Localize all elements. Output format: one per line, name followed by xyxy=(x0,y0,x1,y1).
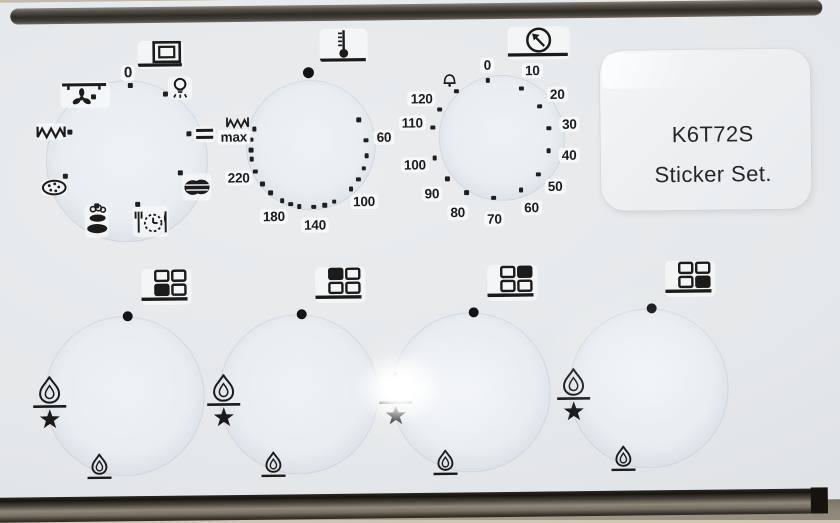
dial-label: 110 xyxy=(399,116,426,131)
dial-tick xyxy=(356,177,361,182)
oven-lamp-icon xyxy=(168,77,192,100)
casserole-icon xyxy=(84,204,108,237)
dial-label: 40 xyxy=(559,147,580,162)
large-flame-icon xyxy=(31,376,68,430)
dial-label: 180 xyxy=(260,209,288,224)
sheen-highlight xyxy=(500,254,772,467)
timer-scale: 0102030405060708090100110120 xyxy=(379,28,601,250)
auto-cook-timer-icon xyxy=(132,206,168,237)
small-flame-icon xyxy=(260,451,286,481)
dial-label: 140 xyxy=(301,217,329,232)
dial-tick xyxy=(546,126,551,131)
dial-tick xyxy=(538,104,543,109)
dial-tick xyxy=(433,156,438,161)
ignition-star-icon xyxy=(40,409,60,428)
dial-label: 70 xyxy=(484,211,505,226)
dial-label: 120 xyxy=(408,91,436,106)
dial-tick xyxy=(311,205,316,210)
product-code: K6T72S xyxy=(623,121,803,149)
panel-content: 0 xyxy=(0,0,840,505)
dial-tick xyxy=(536,172,541,177)
dial-label: 50 xyxy=(545,179,566,194)
dial-tick xyxy=(438,107,443,112)
oven-box-icon xyxy=(138,41,184,70)
burner-position-icon xyxy=(141,269,191,306)
dial-tick xyxy=(67,130,72,135)
pizza-icon xyxy=(41,179,67,196)
dial-tick xyxy=(63,174,68,179)
dial-label: 30 xyxy=(559,117,580,132)
photo: 0 xyxy=(0,0,840,520)
dial-tick xyxy=(431,125,436,130)
dial-tick xyxy=(186,131,191,136)
dial-label: max xyxy=(218,129,251,144)
dial-tick xyxy=(332,199,337,204)
dial-tick xyxy=(135,202,140,207)
dial-tick xyxy=(349,187,354,192)
dial-label: 60 xyxy=(521,200,542,215)
grill-element-icon xyxy=(36,123,67,140)
dial-label: 20 xyxy=(547,87,568,102)
dial-label: 10 xyxy=(522,63,543,78)
dial-tick xyxy=(288,202,293,207)
dial-tick xyxy=(491,196,496,201)
dial-tick xyxy=(268,190,273,195)
dial-tick xyxy=(91,94,96,99)
dial-label: 100 xyxy=(401,157,429,172)
dial-tick xyxy=(249,148,254,153)
dial-tick xyxy=(252,127,257,132)
dial-tick xyxy=(163,92,168,97)
dial-tick xyxy=(128,83,133,88)
dial-tick xyxy=(249,137,254,142)
dial-tick xyxy=(519,188,524,193)
small-flame-icon xyxy=(86,453,112,483)
fan-upper-heat-icon xyxy=(60,81,110,108)
dial-tick xyxy=(364,153,369,158)
dial-label: 90 xyxy=(421,186,442,201)
dial-tick xyxy=(361,166,366,171)
knob-sticker-circle xyxy=(44,315,206,477)
dial-tick xyxy=(546,148,551,153)
product-label-text: K6T72S Sticker Set. xyxy=(623,121,804,189)
dial-tick xyxy=(364,138,369,143)
large-flame-icon xyxy=(205,374,242,428)
dial-tick xyxy=(445,177,450,182)
sticker-sheet: 0 xyxy=(0,0,840,509)
dial-tick xyxy=(322,203,327,208)
burner-off-dot xyxy=(123,311,133,321)
dial-tick xyxy=(94,203,99,208)
product-label-sticker: K6T72S Sticker Set. xyxy=(600,49,812,211)
dial-tick xyxy=(178,170,183,175)
dial-tick xyxy=(260,182,265,187)
dial-tick xyxy=(486,78,491,83)
flash-glare xyxy=(339,338,460,439)
dial-label: 0 xyxy=(481,58,494,73)
dial-tick xyxy=(464,191,469,196)
panel-bottom-trim-cap xyxy=(811,487,828,513)
dial-tick xyxy=(356,117,361,122)
roast-icon xyxy=(182,173,211,200)
dial-tick xyxy=(280,198,285,203)
dial-tick xyxy=(253,169,258,174)
ignition-star-icon xyxy=(214,407,234,426)
dial-tick xyxy=(297,204,302,209)
dial-label: 80 xyxy=(447,204,468,219)
product-subtitle: Sticker Set. xyxy=(623,161,803,189)
peeled-corner xyxy=(602,51,727,88)
dial-tick xyxy=(249,157,254,162)
function-off-label: 0 xyxy=(121,65,136,81)
dial-label: 100 xyxy=(350,194,378,209)
dial-tick xyxy=(519,86,524,91)
panel-top-trim xyxy=(10,0,822,25)
dial-tick xyxy=(454,89,459,94)
dial-label: 220 xyxy=(225,171,253,186)
